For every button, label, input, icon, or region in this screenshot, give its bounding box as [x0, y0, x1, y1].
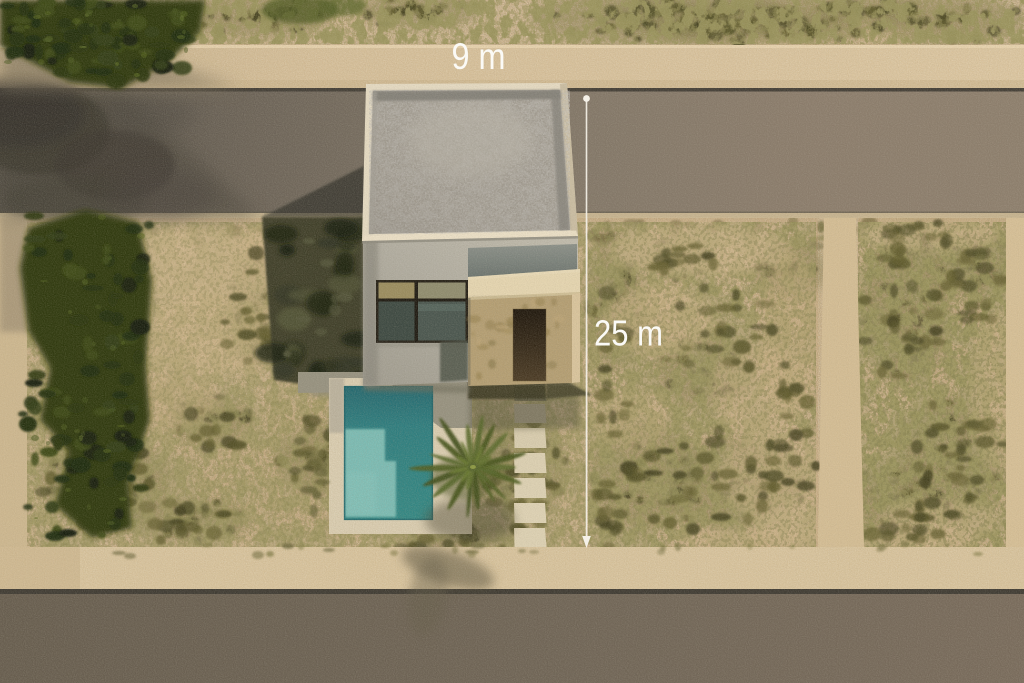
svg-text:9 m: 9 m — [452, 36, 506, 77]
svg-text:25 m: 25 m — [594, 313, 663, 354]
